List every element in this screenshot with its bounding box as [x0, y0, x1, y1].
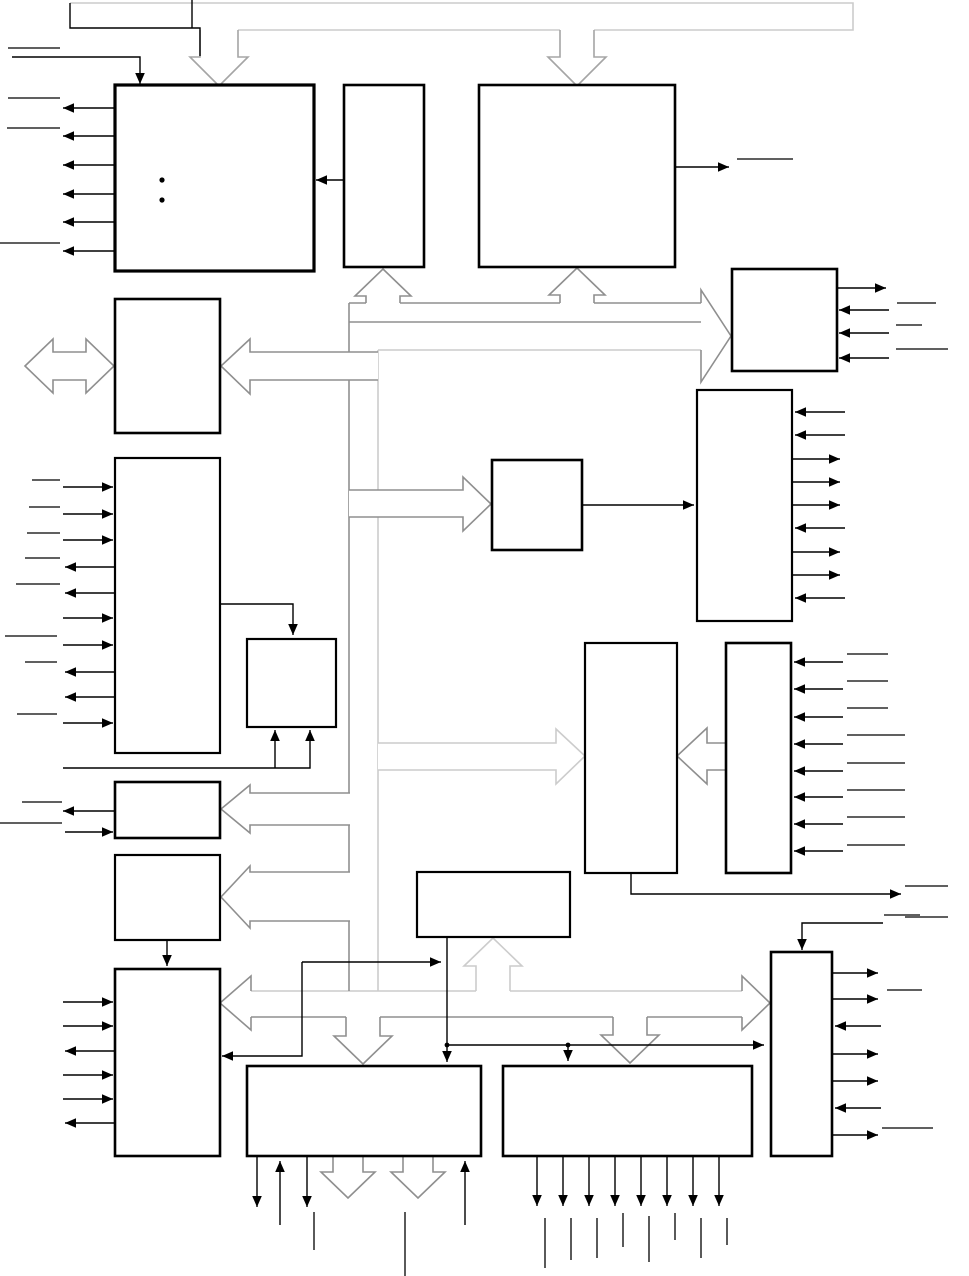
bus-arrow-down-into-top-right [548, 30, 606, 86]
bus-arrow-left-into-bottom-tall [220, 976, 251, 1030]
bus-arrow-right-into-mid-tall-1 [378, 729, 585, 784]
signal-arrowhead-42 [683, 500, 694, 510]
signal-arrowhead-62 [867, 968, 878, 978]
signal-wire-61 [802, 923, 883, 950]
bus-arrow-right-into-right-upper [701, 290, 731, 382]
block-bottom-right-wide [503, 1066, 752, 1156]
signal-arrowhead-63 [867, 994, 878, 1004]
signal-arrowhead-50 [829, 547, 840, 557]
bus-arrow-up-into-mid-wide [464, 938, 522, 991]
signal-arrowhead-30 [162, 955, 172, 966]
signal-arrowhead-26 [305, 730, 315, 741]
block-diagram-canvas [0, 0, 969, 1276]
signal-arrowhead-27 [270, 730, 280, 741]
signal-arrowhead-0 [63, 103, 74, 113]
signal-arrowhead-1 [63, 131, 74, 141]
block-left-tall-port [115, 458, 220, 753]
signal-arrowhead-31 [102, 997, 113, 1007]
signal-arrowhead-52 [795, 593, 806, 603]
signal-arrowhead-14 [839, 353, 850, 363]
signal-arrowhead-55 [794, 712, 805, 722]
signal-wire-6 [70, 3, 200, 56]
signal-arrowhead-36 [65, 1118, 76, 1128]
signal-arrowhead-43 [890, 889, 901, 899]
bus-arrow-down-into-top-left [190, 30, 248, 86]
signal-arrowhead-13 [839, 328, 850, 338]
bus-arrow-left-into-port-a [221, 339, 378, 394]
block-center-left-small [247, 639, 336, 727]
block-left-port-a [115, 299, 220, 433]
bus-arrow-port-down-1 [321, 1156, 375, 1198]
signal-arrowhead-47 [829, 477, 840, 487]
signal-arrowhead-51 [829, 570, 840, 580]
signal-arrowhead-54 [794, 684, 805, 694]
block-left-small-2 [115, 855, 220, 940]
signal-arrowhead-78 [662, 1195, 672, 1206]
signal-arrowhead-75 [584, 1195, 594, 1206]
signal-arrowhead-35 [102, 1094, 113, 1104]
signal-arrowhead-37 [222, 1051, 233, 1061]
signal-arrowhead-49 [795, 523, 806, 533]
signal-arrowhead-59 [794, 819, 805, 829]
block-mid-tall-2 [726, 643, 791, 873]
block-mid-wide-small [417, 872, 570, 937]
signal-arrowhead-33 [65, 1046, 76, 1056]
bus-arrow-up-into-middle-narrow [355, 269, 411, 303]
signal-arrowhead-29 [102, 827, 113, 837]
signal-arrowhead-41 [563, 1050, 573, 1061]
signal-arrowhead-65 [867, 1049, 878, 1059]
signal-arrowhead-71 [302, 1196, 312, 1207]
block-diagram-page [0, 0, 969, 1276]
block-right-tall-upper [697, 390, 792, 621]
signal-arrowhead-28 [63, 806, 74, 816]
signal-arrowhead-79 [688, 1195, 698, 1206]
signal-arrowhead-12 [839, 305, 850, 315]
bus-arrow-right-into-right-bottom [742, 976, 770, 1030]
signal-arrowhead-45 [795, 430, 806, 440]
block-mid-tall-1 [585, 643, 677, 873]
signal-arrowhead-9 [316, 175, 327, 185]
signal-arrowhead-17 [102, 535, 113, 545]
signal-arrowhead-21 [102, 640, 113, 650]
signal-arrowhead-39 [442, 1051, 452, 1062]
block-left-small-1 [115, 782, 220, 838]
bus-arrow-down-into-bottom-right [601, 1017, 659, 1063]
block-right-upper-small [732, 269, 837, 371]
bus-arrow-left-into-small-1 [221, 785, 350, 833]
signal-arrowhead-19 [65, 588, 76, 598]
dot-3 [566, 1043, 571, 1048]
signal-arrowhead-70 [275, 1161, 285, 1172]
signal-arrowhead-57 [794, 766, 805, 776]
signal-arrowhead-76 [610, 1195, 620, 1206]
signal-arrowhead-68 [867, 1130, 878, 1140]
signal-arrowhead-64 [835, 1021, 846, 1031]
signal-arrowhead-10 [718, 162, 729, 172]
signal-arrowhead-18 [65, 562, 76, 572]
signal-arrowhead-22 [65, 667, 76, 677]
signal-arrowhead-73 [532, 1195, 542, 1206]
block-right-bottom-tall [771, 952, 832, 1156]
signal-arrowhead-77 [636, 1195, 646, 1206]
block-left-bottom-tall [115, 969, 220, 1156]
dot-1 [159, 197, 164, 202]
signal-arrowhead-24 [102, 718, 113, 728]
signal-arrowhead-67 [835, 1103, 846, 1113]
signal-arrowhead-8 [135, 73, 145, 84]
signal-wire-43 [631, 873, 901, 894]
bus-arrow-left-into-small-2 [221, 866, 350, 928]
dot-0 [159, 177, 164, 182]
dot-2 [445, 1043, 450, 1048]
bus-arrow-down-into-bottom-left [334, 1017, 392, 1064]
block-center-small [492, 460, 582, 550]
signal-wire-25 [220, 604, 293, 635]
signal-arrowhead-53 [794, 657, 805, 667]
block-top-right-large [479, 85, 675, 267]
signal-arrowhead-48 [829, 500, 840, 510]
signal-arrowhead-2 [63, 160, 74, 170]
signal-arrowhead-66 [867, 1076, 878, 1086]
bus-arrow-left-mid2-to-mid1 [677, 728, 726, 784]
signal-arrowhead-25 [288, 624, 298, 635]
signal-arrowhead-16 [102, 509, 113, 519]
signal-arrowhead-60 [794, 846, 805, 856]
signal-arrowhead-11 [875, 283, 886, 293]
signal-arrowhead-20 [102, 613, 113, 623]
signal-arrowhead-74 [558, 1195, 568, 1206]
bus-arrow-right-into-center [349, 477, 491, 531]
signal-arrowhead-15 [102, 482, 113, 492]
signal-arrowhead-5 [63, 246, 74, 256]
signal-arrowhead-40 [753, 1040, 764, 1050]
block-top-middle-narrow [344, 85, 424, 267]
block-bottom-left-wide [247, 1066, 481, 1156]
signal-arrowhead-44 [795, 407, 806, 417]
signal-arrowhead-46 [829, 454, 840, 464]
signal-arrowhead-38 [430, 957, 441, 967]
signal-arrowhead-3 [63, 189, 74, 199]
signal-arrowhead-23 [65, 692, 76, 702]
signal-arrowhead-69 [252, 1196, 262, 1207]
block-top-left-large [115, 85, 314, 271]
bus-arrow-port-down-2 [391, 1156, 445, 1198]
signal-arrowhead-72 [460, 1161, 470, 1172]
bus-arrow-up-into-top-right [549, 268, 605, 303]
signal-arrowhead-56 [794, 739, 805, 749]
signal-arrowhead-61 [797, 939, 807, 950]
signal-arrowhead-34 [102, 1070, 113, 1080]
signal-arrowhead-4 [63, 217, 74, 227]
signal-arrowhead-58 [794, 792, 805, 802]
bus-arrow-bidirectional-left [25, 339, 114, 393]
signal-wire-8 [12, 57, 140, 84]
signal-arrowhead-32 [102, 1021, 113, 1031]
signal-arrowhead-80 [714, 1195, 724, 1206]
bus-line-top-bus-outer [70, 3, 853, 30]
